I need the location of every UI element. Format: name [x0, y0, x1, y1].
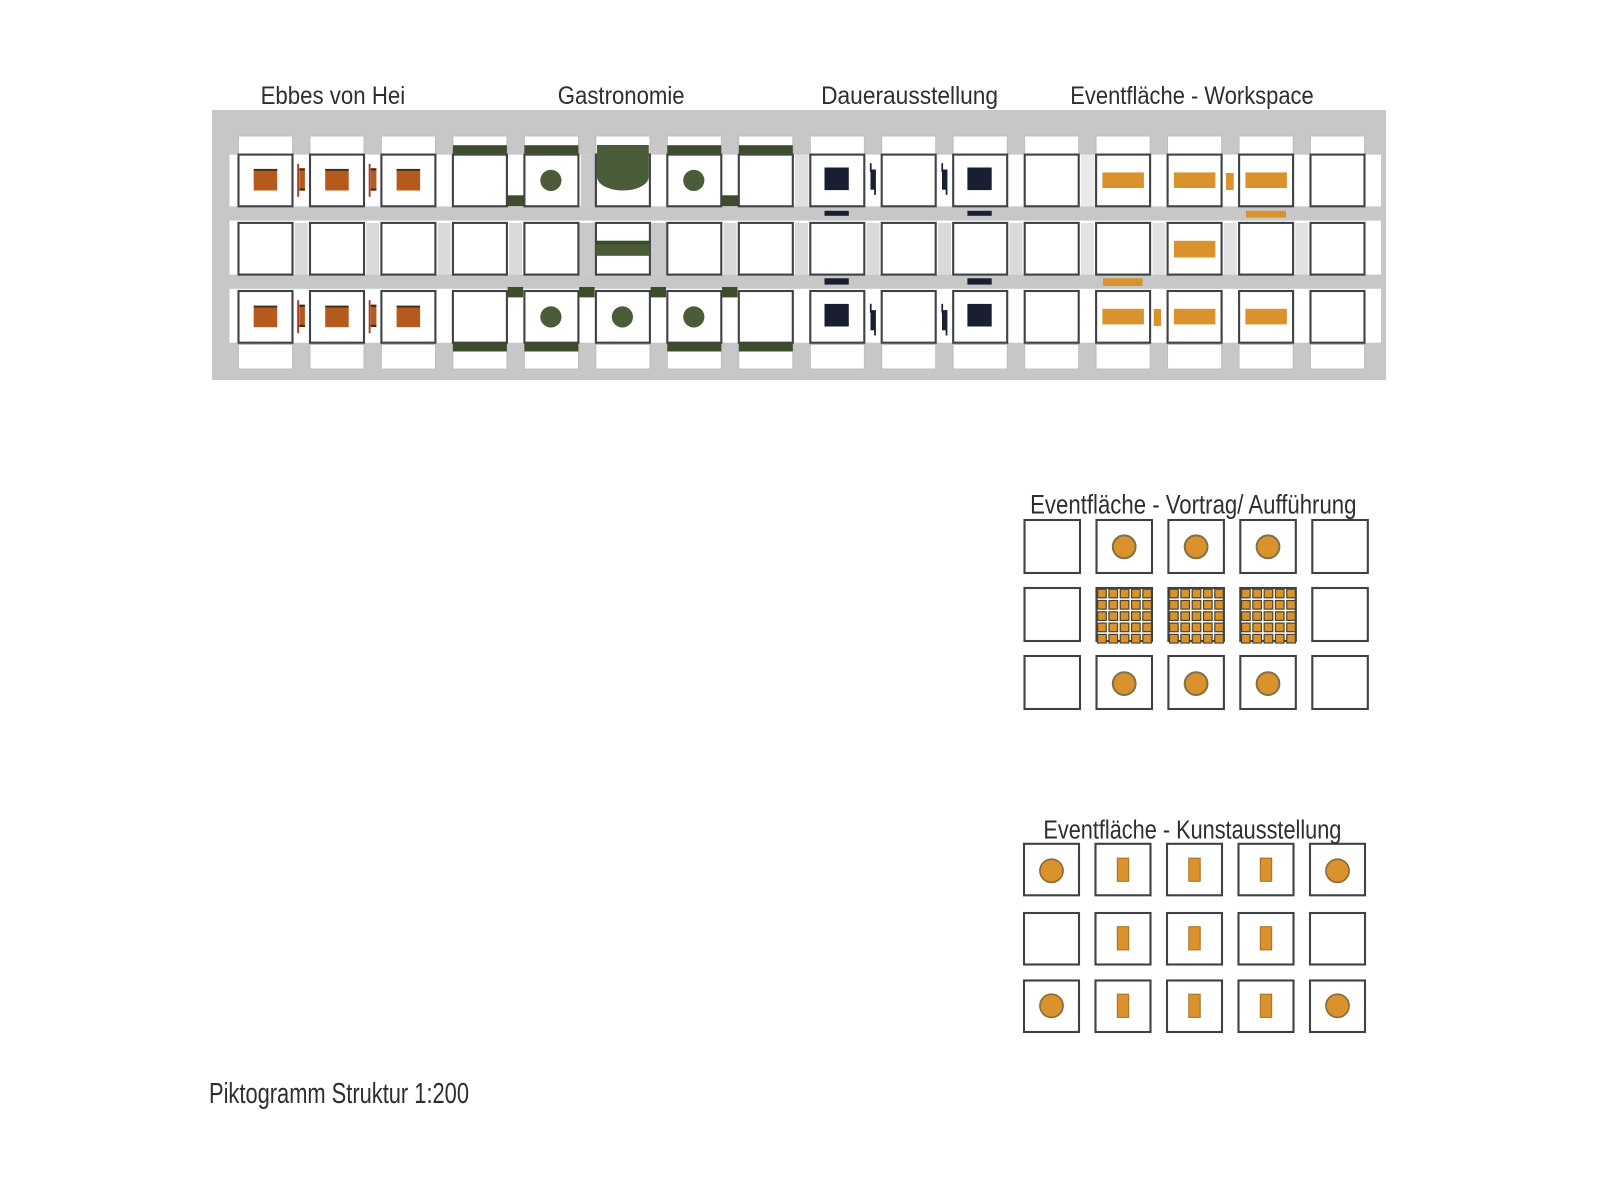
svg-text:Gastronomie: Gastronomie [558, 82, 685, 110]
svg-text:Ebbes von Hei: Ebbes von Hei [261, 82, 406, 110]
svg-text:Piktogramm Struktur 1:200: Piktogramm Struktur 1:200 [209, 1078, 469, 1110]
svg-text:Eventfläche - Workspace: Eventfläche - Workspace [1070, 82, 1313, 110]
svg-text:Eventfläche - Vortrag/ Aufführ: Eventfläche - Vortrag/ Aufführung [1030, 490, 1356, 520]
svg-text:Dauerausstellung: Dauerausstellung [821, 82, 998, 110]
svg-text:Eventfläche - Kunstausstellung: Eventfläche - Kunstausstellung [1043, 817, 1341, 845]
